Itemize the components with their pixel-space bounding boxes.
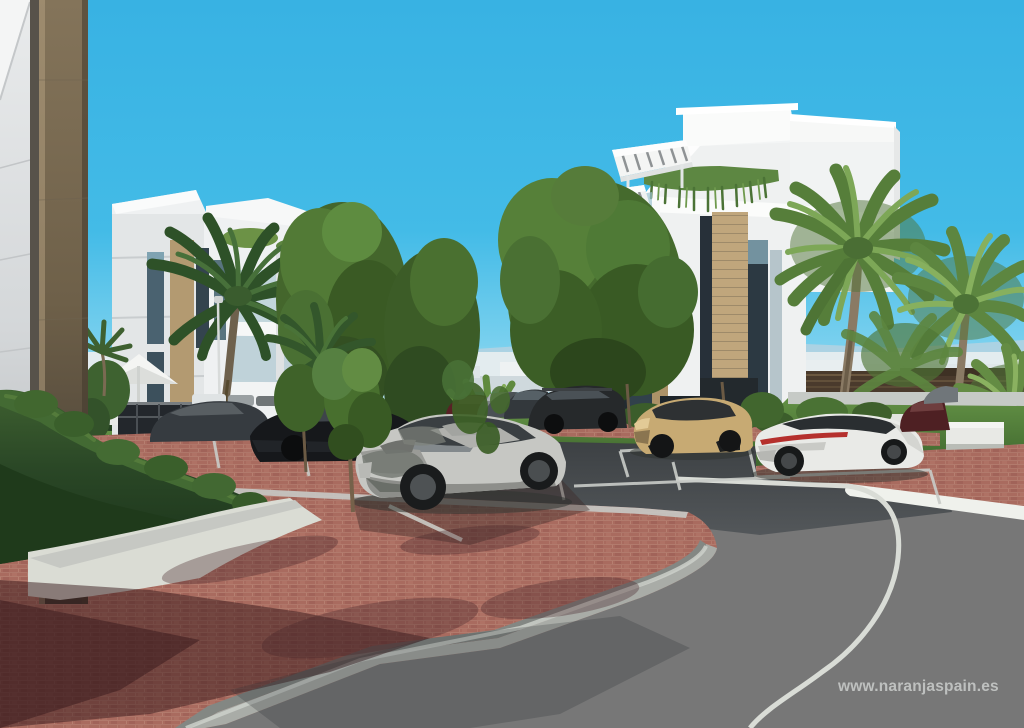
svg-text:www.naranjaspain.es: www.naranjaspain.es [837, 678, 999, 695]
